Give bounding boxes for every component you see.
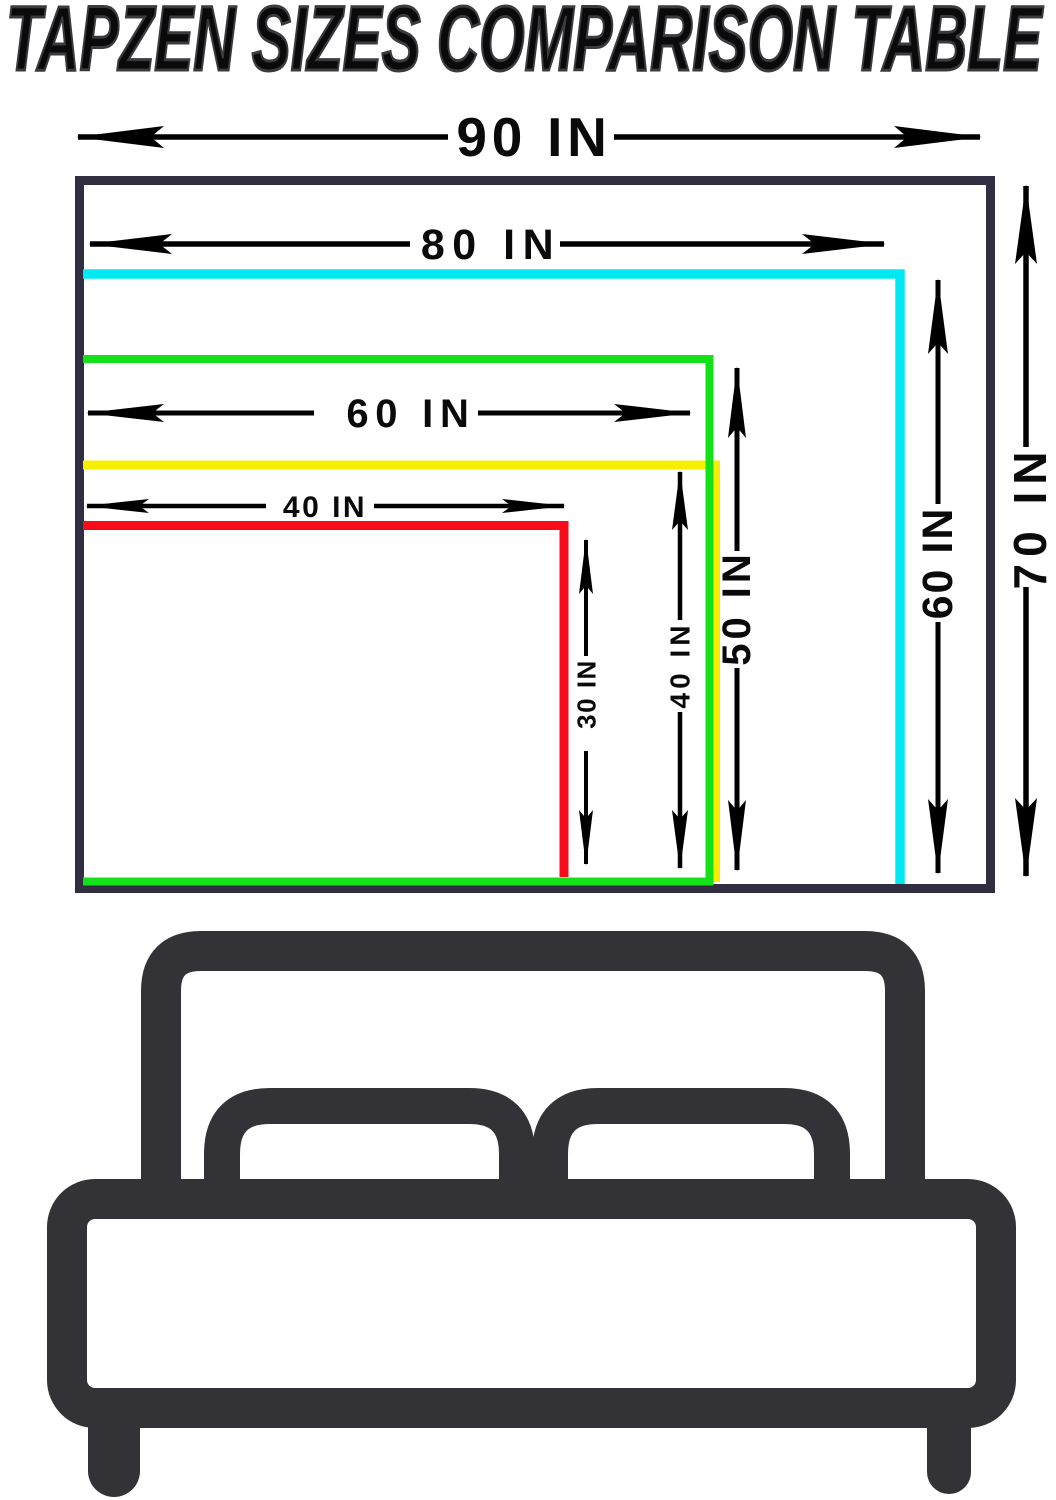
svg-text:30 IN: 30 IN xyxy=(572,659,602,729)
svg-text:40 IN: 40 IN xyxy=(283,491,367,524)
svg-text:60 IN: 60 IN xyxy=(346,392,475,436)
svg-text:60 IN: 60 IN xyxy=(914,507,962,620)
svg-text:70 IN: 70 IN xyxy=(1004,445,1056,590)
svg-text:40 IN: 40 IN xyxy=(665,622,696,709)
svg-text:TAPZEN SIZES COMPARISON TABLE: TAPZEN SIZES COMPARISON TABLE xyxy=(6,0,1044,90)
svg-text:80 IN: 80 IN xyxy=(421,221,561,269)
svg-text:50 IN: 50 IN xyxy=(715,550,759,666)
svg-text:90 IN: 90 IN xyxy=(456,106,611,168)
